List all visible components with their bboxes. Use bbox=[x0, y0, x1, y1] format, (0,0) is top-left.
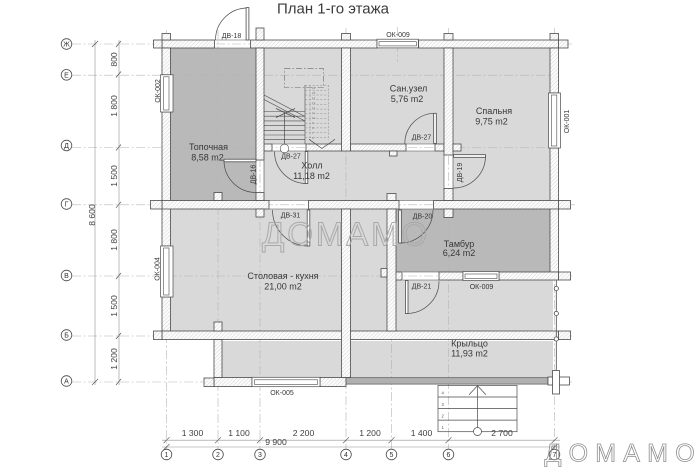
svg-text:11: 11 bbox=[312, 111, 315, 115]
svg-text:ОК-002: ОК-002 bbox=[155, 79, 162, 103]
svg-text:ОК-009: ОК-009 bbox=[470, 284, 494, 291]
svg-text:16: 16 bbox=[312, 86, 316, 90]
svg-text:Топочная: Топочная bbox=[189, 142, 228, 152]
svg-text:1 200: 1 200 bbox=[359, 428, 381, 438]
svg-text:1: 1 bbox=[165, 452, 169, 459]
svg-text:6,24 m2: 6,24 m2 bbox=[443, 248, 476, 258]
svg-text:Ж: Ж bbox=[63, 42, 70, 49]
svg-text:Д: Д bbox=[64, 143, 69, 150]
svg-text:Е: Е bbox=[64, 72, 69, 79]
svg-text:2 200: 2 200 bbox=[293, 428, 315, 438]
svg-text:1 400: 1 400 bbox=[411, 428, 433, 438]
svg-text:ДВ-27: ДВ-27 bbox=[412, 135, 432, 142]
svg-text:1 300: 1 300 bbox=[182, 428, 204, 438]
svg-text:ОК-004: ОК-004 bbox=[155, 257, 162, 281]
svg-text:8,58 m2: 8,58 m2 bbox=[191, 153, 224, 163]
svg-text:А: А bbox=[64, 379, 69, 386]
svg-text:ОК-005: ОК-005 bbox=[270, 390, 294, 397]
svg-text:14: 14 bbox=[312, 96, 316, 100]
svg-text:Г: Г bbox=[65, 202, 69, 209]
svg-text:ДВ-21: ДВ-21 bbox=[412, 284, 432, 291]
svg-text:12: 12 bbox=[312, 106, 316, 110]
svg-text:ДОМАМО: ДОМАМО bbox=[545, 440, 700, 467]
svg-text:800: 800 bbox=[109, 52, 119, 67]
svg-text:ДВ-16: ДВ-16 bbox=[251, 165, 258, 185]
svg-text:ДВ-27: ДВ-27 bbox=[281, 154, 301, 161]
svg-text:10: 10 bbox=[312, 116, 316, 120]
svg-text:11,18 m2: 11,18 m2 bbox=[293, 171, 330, 181]
svg-text:4: 4 bbox=[344, 452, 348, 459]
svg-text:13: 13 bbox=[312, 101, 316, 105]
svg-text:Столовая - кухня: Столовая - кухня bbox=[247, 271, 318, 281]
svg-text:21,00 m2: 21,00 m2 bbox=[264, 282, 302, 292]
svg-text:Спальня: Спальня bbox=[476, 106, 512, 116]
svg-text:ДВ-19: ДВ-19 bbox=[457, 163, 464, 183]
svg-text:В: В bbox=[64, 273, 69, 280]
svg-text:9 900: 9 900 bbox=[265, 437, 287, 447]
svg-text:1 200: 1 200 bbox=[109, 348, 119, 370]
svg-text:План 1-го этажа: План 1-го этажа bbox=[277, 1, 390, 18]
svg-text:5,76 m2: 5,76 m2 bbox=[391, 94, 424, 104]
svg-text:1 100: 1 100 bbox=[228, 428, 250, 438]
svg-text:Крыльцо: Крыльцо bbox=[451, 339, 488, 349]
svg-text:5: 5 bbox=[390, 452, 394, 459]
svg-text:1 800: 1 800 bbox=[109, 95, 119, 117]
svg-text:2: 2 bbox=[216, 452, 220, 459]
svg-text:ОК-009: ОК-009 bbox=[386, 32, 410, 39]
svg-text:Б: Б bbox=[64, 333, 69, 340]
svg-text:6: 6 bbox=[447, 452, 451, 459]
svg-text:9,75 m2: 9,75 m2 bbox=[475, 117, 508, 127]
svg-text:ДВ-18: ДВ-18 bbox=[222, 33, 242, 40]
svg-text:1 500: 1 500 bbox=[109, 295, 119, 317]
svg-text:ДОМАМО: ДОМАМО bbox=[262, 216, 430, 253]
svg-text:ОК-001: ОК-001 bbox=[564, 110, 571, 134]
svg-text:Холл: Холл bbox=[301, 161, 322, 171]
svg-text:15: 15 bbox=[312, 91, 316, 95]
svg-text:2 700: 2 700 bbox=[491, 428, 513, 438]
svg-text:1 800: 1 800 bbox=[109, 229, 119, 251]
svg-text:3: 3 bbox=[258, 452, 262, 459]
svg-text:11,93 m2: 11,93 m2 bbox=[451, 349, 488, 359]
svg-text:1 500: 1 500 bbox=[109, 165, 119, 187]
svg-text:8 600: 8 600 bbox=[87, 204, 97, 226]
svg-text:Сан.узел: Сан.узел bbox=[390, 84, 428, 94]
